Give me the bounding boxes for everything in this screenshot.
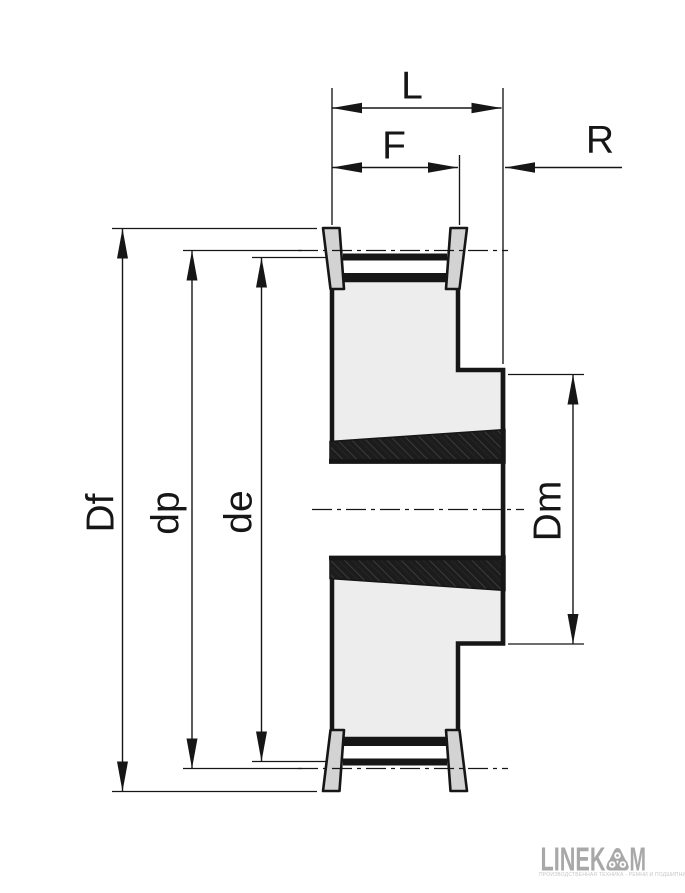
arrowhead-Df-down <box>117 762 128 792</box>
arrowhead-F-right <box>428 162 458 172</box>
dim-label-L: L <box>401 67 423 106</box>
belt-rim-bar-top-outer <box>343 254 447 261</box>
belt-rim-bar-bottom-inner <box>343 739 447 746</box>
dim-label-dp: dp <box>147 491 186 534</box>
pulley-drawing-page: LINEK M L F R Df dp de Dm ПРОИЗВОДСТВЕНН… <box>0 0 685 893</box>
arrowhead-L-left <box>332 103 362 113</box>
arrowhead-dp-up <box>187 251 198 281</box>
logo-tagline: ПРОИЗВОДСТВЕННАЯ ТЕХНИКА - РЕМНИ И ПОДШИ… <box>539 872 653 878</box>
arrowhead-de-up <box>256 258 267 288</box>
pulley-drawing: LINEK M <box>0 0 685 893</box>
dim-label-de: de <box>220 490 259 533</box>
dim-label-Dm: Dm <box>529 481 568 542</box>
arrowhead-Dm-up <box>568 375 579 405</box>
dim-label-Df: Df <box>82 494 121 533</box>
arrowhead-R-left <box>505 162 535 172</box>
logo-pulley-icon <box>608 851 627 868</box>
arrowhead-F-left <box>332 162 362 172</box>
belt-rim-bar-bottom-outer <box>343 759 447 766</box>
arrowhead-Dm-down <box>568 614 579 644</box>
dim-label-R: R <box>586 121 614 160</box>
arrowhead-de-down <box>256 732 267 762</box>
flange-bottom-right <box>446 730 467 791</box>
arrowhead-L-right <box>472 103 502 113</box>
flange-bottom-left <box>323 730 344 791</box>
dim-label-F: F <box>382 127 406 166</box>
belt-rim-bar-top-inner <box>343 273 447 280</box>
flange-top-right <box>446 228 467 289</box>
arrowhead-dp-down <box>187 739 198 769</box>
arrowhead-Df-up <box>117 229 128 259</box>
flange-top-left <box>323 228 344 289</box>
